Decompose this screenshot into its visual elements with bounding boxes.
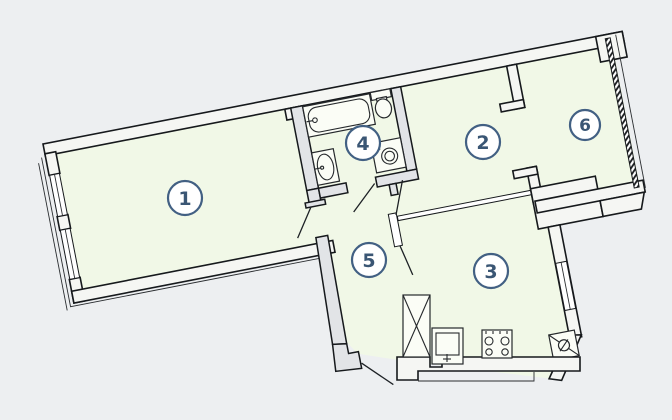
room-label-4: 4: [346, 126, 380, 160]
room-1-number: 1: [178, 188, 191, 210]
room-4-number: 4: [356, 133, 369, 155]
entrance-door-swing: [362, 358, 394, 390]
room-6-number: 6: [579, 116, 591, 136]
left-wall-segment: [57, 215, 70, 231]
floor-plan: 1 2 3 4 5 6: [0, 0, 672, 420]
room-2-number: 2: [476, 132, 489, 154]
floor-plan-svg: 1 2 3 4 5 6: [0, 0, 672, 420]
stove: [482, 330, 512, 358]
bathroom-wall-tab: [389, 183, 398, 195]
room-label-6: 6: [570, 110, 600, 140]
room-label-3: 3: [474, 254, 508, 288]
room-label-5: 5: [352, 243, 386, 277]
room-label-2: 2: [466, 125, 500, 159]
room-label-1: 1: [168, 181, 202, 215]
room-5-number: 5: [362, 250, 375, 272]
room-3-number: 3: [484, 261, 497, 283]
water-heater: [549, 330, 579, 360]
kitchen-sink: [432, 328, 463, 364]
refrigerator: [403, 295, 430, 357]
